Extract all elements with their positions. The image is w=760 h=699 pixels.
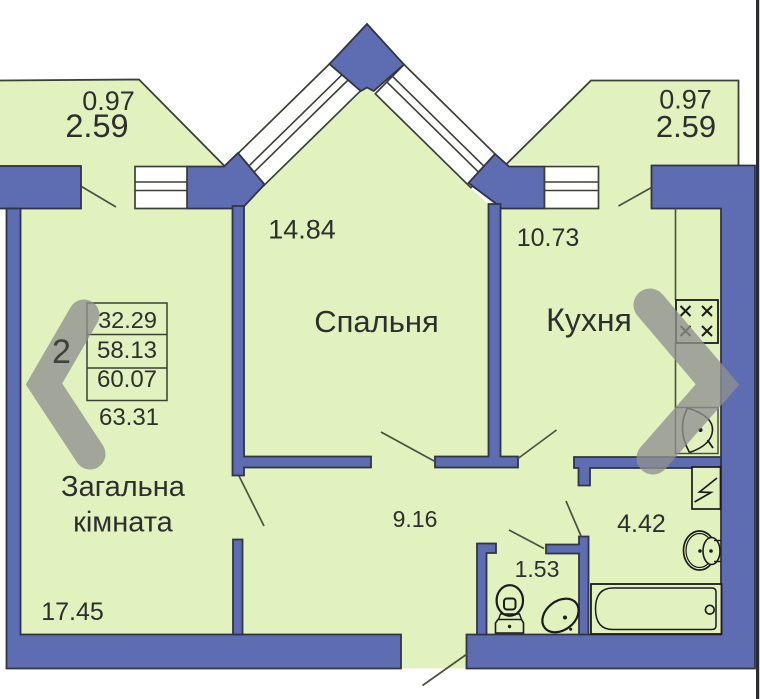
svg-text:63.31: 63.31 bbox=[99, 404, 159, 431]
svg-text:2: 2 bbox=[52, 333, 71, 371]
svg-text:9.16: 9.16 bbox=[393, 506, 438, 532]
svg-text:32.29: 32.29 bbox=[98, 307, 157, 333]
svg-text:1.53: 1.53 bbox=[515, 556, 560, 582]
svg-text:кімната: кімната bbox=[73, 507, 174, 539]
svg-text:17.45: 17.45 bbox=[41, 598, 104, 626]
svg-text:2.59: 2.59 bbox=[65, 108, 128, 144]
svg-text:4.42: 4.42 bbox=[617, 510, 666, 538]
svg-text:10.73: 10.73 bbox=[517, 224, 580, 252]
svg-text:60.07: 60.07 bbox=[97, 366, 157, 393]
svg-text:Загальна: Загальна bbox=[61, 471, 186, 503]
svg-text:58.13: 58.13 bbox=[97, 337, 157, 364]
svg-text:Спальня: Спальня bbox=[314, 304, 439, 339]
svg-text:2.59: 2.59 bbox=[656, 109, 716, 144]
svg-text:14.84: 14.84 bbox=[268, 215, 336, 245]
svg-text:Кухня: Кухня bbox=[546, 302, 632, 338]
